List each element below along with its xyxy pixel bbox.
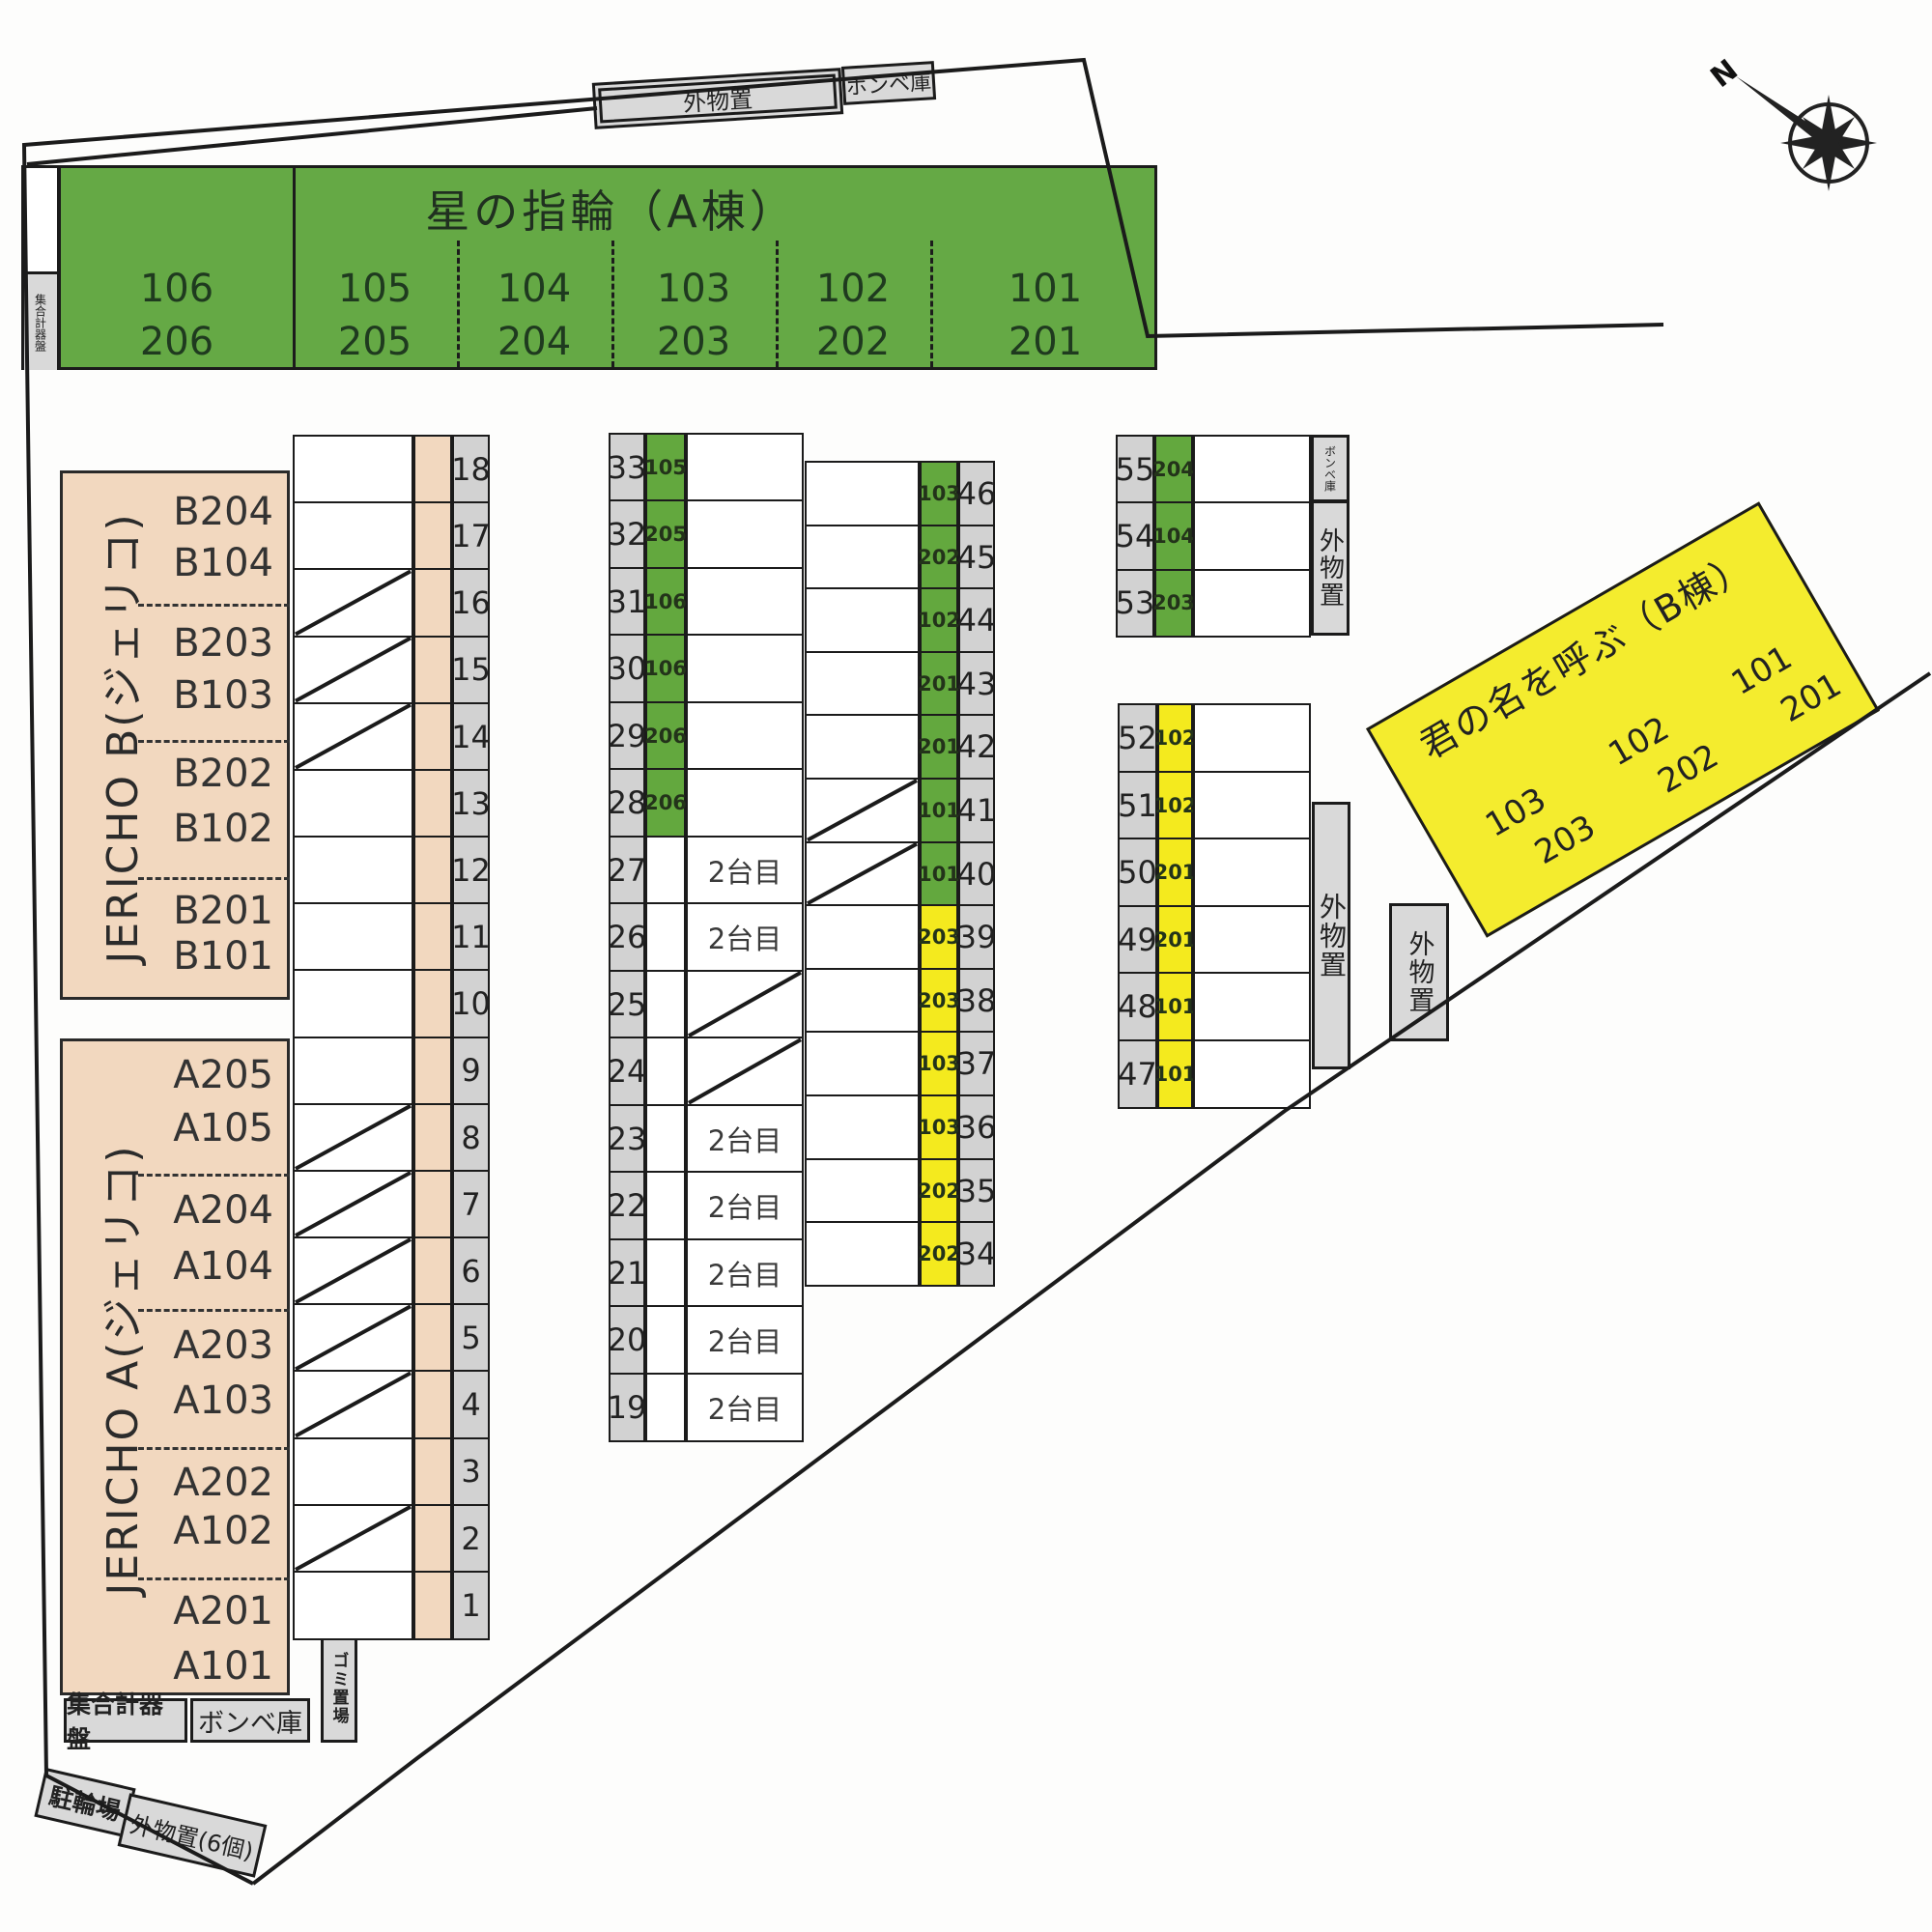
parking-tan-5 — [413, 1303, 452, 1373]
green-unit-second-206: 206 — [140, 320, 213, 364]
parking-stall-53 — [1193, 569, 1311, 639]
green-unit-first-104: 104 — [497, 267, 571, 311]
parking-space-number-23: 23 — [611, 1106, 643, 1172]
parking-space-number-16: 16 — [454, 570, 488, 636]
parking-cell-51: 102 — [1157, 771, 1193, 840]
second-car-label-21: 2台目 — [688, 1240, 802, 1306]
parking-space-number-5: 5 — [454, 1305, 488, 1371]
compass-star-diagonal — [1803, 117, 1855, 169]
ne-cylinder-storage-label: ボンベ庫 — [1322, 445, 1339, 492]
parking-num-28: 28 — [609, 768, 645, 838]
unit-label-A104: A104 — [173, 1244, 273, 1289]
parking-cell-25 — [645, 970, 686, 1039]
parking-num-25: 25 — [609, 970, 645, 1039]
parking-stall-24 — [686, 1037, 804, 1106]
parking-space-number-55: 55 — [1118, 437, 1152, 502]
top-cylinder-storage: ボンベ庫 — [841, 61, 936, 105]
parking-num-32: 32 — [609, 499, 645, 569]
assigned-unit-43: 201 — [922, 653, 956, 715]
parking-space-number-9: 9 — [454, 1038, 488, 1104]
green-unit-second-204: 204 — [497, 320, 571, 364]
parking-num-1: 1 — [452, 1571, 490, 1640]
unit-label-B101: B101 — [173, 934, 273, 979]
unit-separator-0 — [138, 1174, 290, 1177]
parking-tan-3 — [413, 1437, 452, 1507]
parking-num-41: 41 — [958, 778, 995, 843]
building-jericho-a: JERICHO A(ジェリコ) A205A105A204A104A203A103… — [60, 1038, 290, 1695]
parking-space-number-4: 4 — [454, 1372, 488, 1437]
parking-space-number-49: 49 — [1120, 907, 1155, 973]
garbage-area: ゴミ置場 — [321, 1634, 357, 1743]
bottom-cylinder-storage-label: ボンベ庫 — [198, 1702, 302, 1740]
building-hoshi-a-title: 星の指輪（A棟） — [425, 177, 797, 241]
parking-stall-18 — [293, 435, 413, 504]
parking-space-number-26: 26 — [611, 904, 643, 970]
building-jericho-a-name: JERICHO A(ジェリコ) — [88, 1144, 150, 1595]
parking-num-6: 6 — [452, 1236, 490, 1306]
parking-stall-2 — [293, 1504, 413, 1574]
parking-stall-34 — [805, 1221, 920, 1287]
parking-num-27: 27 — [609, 836, 645, 905]
parking-tan-14 — [413, 702, 452, 772]
parking-tan-8 — [413, 1103, 452, 1173]
parking-space-number-22: 22 — [611, 1173, 643, 1238]
compass-north-label: N — [1704, 53, 1744, 95]
parking-space-number-12: 12 — [454, 838, 488, 903]
parking-cell-28: 206 — [645, 768, 686, 838]
parking-stall-3 — [293, 1437, 413, 1507]
parking-cell-43: 201 — [920, 651, 958, 717]
parking-num-19: 19 — [609, 1373, 645, 1442]
building-kimi-b: 君の名を呼ぶ（B棟） 103203102202101201 — [1366, 501, 1880, 938]
parking-stall-46 — [805, 461, 920, 526]
east-outdoor-storage-detached-label: 外物置 — [1401, 930, 1438, 1014]
parking-tan-4 — [413, 1370, 452, 1439]
parking-num-18: 18 — [452, 435, 490, 504]
parking-cell-21 — [645, 1238, 686, 1308]
assigned-unit-29: 206 — [647, 703, 684, 769]
parking-space-number-21: 21 — [611, 1240, 643, 1306]
parking-space-number-19: 19 — [611, 1375, 643, 1440]
parking-stall-35 — [805, 1158, 920, 1224]
parking-cell-34: 202 — [920, 1221, 958, 1287]
parking-num-34: 34 — [958, 1221, 995, 1287]
parking-stall-39 — [805, 904, 920, 970]
parking-stall-13 — [293, 769, 413, 838]
parking-space-number-1: 1 — [454, 1573, 488, 1638]
parking-stall-45 — [805, 525, 920, 590]
parking-cell-41: 101 — [920, 778, 958, 843]
assigned-unit-41: 101 — [922, 780, 956, 841]
green-divider-dashed-0 — [457, 241, 460, 367]
parking-cell-52: 102 — [1157, 703, 1193, 773]
unit-label-A204: A204 — [173, 1188, 273, 1233]
parking-space-number-38: 38 — [960, 970, 993, 1032]
parking-tan-16 — [413, 568, 452, 638]
assigned-unit-54: 104 — [1156, 503, 1191, 569]
parking-cell-55: 204 — [1154, 435, 1193, 504]
parking-stall-54 — [1193, 501, 1311, 571]
parking-num-50: 50 — [1118, 838, 1157, 907]
parking-space-number-2: 2 — [454, 1506, 488, 1572]
parking-cell-31: 106 — [645, 567, 686, 637]
parking-num-35: 35 — [958, 1158, 995, 1224]
parking-num-52: 52 — [1118, 703, 1157, 773]
parking-stall-36 — [805, 1094, 920, 1160]
second-car-label-26: 2台目 — [688, 904, 802, 970]
parking-cell-33: 105 — [645, 433, 686, 502]
parking-stall-29 — [686, 701, 804, 771]
bicycle-parking: 駐輪場 — [34, 1768, 135, 1837]
parking-num-17: 17 — [452, 501, 490, 571]
parking-cell-49: 201 — [1157, 905, 1193, 975]
ne-cylinder-storage: ボンベ庫 — [1311, 435, 1350, 502]
unit-label-A103: A103 — [173, 1378, 273, 1423]
site-plan-canvas: N 外物置 ボンベ庫 星の指輪（A棟） 10620610520510420410… — [0, 0, 1932, 1932]
parking-num-33: 33 — [609, 433, 645, 502]
parking-tan-2 — [413, 1504, 452, 1574]
parking-cell-19 — [645, 1373, 686, 1442]
parking-num-23: 23 — [609, 1104, 645, 1174]
parking-stall-20: 2台目 — [686, 1305, 804, 1375]
parking-num-10: 10 — [452, 969, 490, 1038]
assigned-unit-47: 101 — [1159, 1041, 1191, 1107]
parking-space-number-29: 29 — [611, 703, 643, 769]
second-car-label-27: 2台目 — [688, 838, 802, 903]
parking-num-40: 40 — [958, 841, 995, 907]
parking-space-number-28: 28 — [611, 770, 643, 836]
parking-stall-28 — [686, 768, 804, 838]
parking-cell-38: 203 — [920, 968, 958, 1034]
parking-cell-27 — [645, 836, 686, 905]
parking-cell-29: 206 — [645, 701, 686, 771]
building-jericho-b-name: JERICHO B(ジェリコ) — [88, 512, 150, 963]
compass-star-main — [1780, 95, 1877, 191]
parking-space-number-52: 52 — [1120, 705, 1155, 771]
parking-stall-47 — [1193, 1039, 1311, 1109]
building-kimi-b-title: 君の名を呼ぶ（B棟） — [1377, 517, 1791, 787]
assigned-unit-55: 204 — [1156, 437, 1191, 502]
parking-stall-14 — [293, 702, 413, 772]
parking-cell-32: 205 — [645, 499, 686, 569]
assigned-unit-32: 205 — [647, 501, 684, 567]
parking-cell-24 — [645, 1037, 686, 1106]
parking-num-22: 22 — [609, 1171, 645, 1240]
parking-stall-17 — [293, 501, 413, 571]
parking-cell-48: 101 — [1157, 972, 1193, 1041]
green-unit-first-106: 106 — [140, 267, 213, 311]
parking-num-8: 8 — [452, 1103, 490, 1173]
assigned-unit-49: 201 — [1159, 907, 1191, 973]
assigned-unit-46: 103 — [922, 463, 956, 525]
assigned-unit-28: 206 — [647, 770, 684, 836]
unit-label-B104: B104 — [173, 541, 273, 585]
parking-num-2: 2 — [452, 1504, 490, 1574]
parking-stall-16 — [293, 568, 413, 638]
parking-stall-43 — [805, 651, 920, 717]
parking-stall-4 — [293, 1370, 413, 1439]
assigned-unit-31: 106 — [647, 569, 684, 635]
unit-label-B202: B202 — [173, 752, 273, 796]
unit-label-A102: A102 — [173, 1509, 273, 1553]
parking-num-16: 16 — [452, 568, 490, 638]
parking-space-number-43: 43 — [960, 653, 993, 715]
parking-num-13: 13 — [452, 769, 490, 838]
parking-stall-41 — [805, 778, 920, 843]
parking-num-30: 30 — [609, 634, 645, 703]
parking-stall-48 — [1193, 972, 1311, 1041]
parking-stall-40 — [805, 841, 920, 907]
second-car-label-23: 2台目 — [688, 1106, 802, 1172]
parking-space-number-8: 8 — [454, 1105, 488, 1171]
parking-stall-6 — [293, 1236, 413, 1306]
parking-tan-13 — [413, 769, 452, 838]
parking-num-47: 47 — [1118, 1039, 1157, 1109]
parking-cell-45: 202 — [920, 525, 958, 590]
green-unit-first-103: 103 — [657, 267, 730, 311]
east-outdoor-storage-detached: 外物置 — [1389, 903, 1449, 1041]
parking-num-3: 3 — [452, 1437, 490, 1507]
garbage-area-label: ゴミ置場 — [327, 1652, 352, 1725]
parking-space-number-27: 27 — [611, 838, 643, 903]
parking-space-number-24: 24 — [611, 1038, 643, 1104]
green-meter-strip: 集合計器盤 — [21, 165, 60, 370]
green-divider-dashed-3 — [930, 241, 933, 367]
parking-space-number-18: 18 — [454, 437, 488, 502]
parking-space-number-3: 3 — [454, 1439, 488, 1505]
assigned-unit-37: 103 — [922, 1033, 956, 1094]
parking-space-number-25: 25 — [611, 972, 643, 1037]
unit-separator-3 — [138, 1577, 290, 1580]
parking-cell-40: 101 — [920, 841, 958, 907]
parking-stall-12 — [293, 836, 413, 905]
parking-tan-17 — [413, 501, 452, 571]
bottom-meter-panel: 集合計器盤 — [64, 1698, 187, 1743]
parking-stall-32 — [686, 499, 804, 569]
green-divider-solid — [293, 168, 296, 367]
parking-stall-31 — [686, 567, 804, 637]
parking-space-number-7: 7 — [454, 1172, 488, 1237]
unit-separator-2 — [138, 877, 290, 880]
green-divider-dashed-1 — [611, 241, 614, 367]
parking-num-7: 7 — [452, 1170, 490, 1239]
assigned-unit-38: 203 — [922, 970, 956, 1032]
parking-num-31: 31 — [609, 567, 645, 637]
top-outdoor-storage-label: 外物置 — [682, 79, 753, 117]
outdoor-storage-6-label: 外物置(6個) — [128, 1804, 258, 1865]
parking-num-39: 39 — [958, 904, 995, 970]
parking-space-number-48: 48 — [1120, 974, 1155, 1039]
parking-space-number-45: 45 — [960, 526, 993, 588]
parking-stall-9 — [293, 1037, 413, 1106]
parking-cell-37: 103 — [920, 1031, 958, 1096]
assigned-unit-35: 202 — [922, 1160, 956, 1222]
parking-cell-54: 104 — [1154, 501, 1193, 571]
unit-label-B204: B204 — [173, 490, 273, 534]
parking-stall-52 — [1193, 703, 1311, 773]
parking-space-number-40: 40 — [960, 843, 993, 905]
parking-stall-7 — [293, 1170, 413, 1239]
assigned-unit-42: 201 — [922, 716, 956, 778]
parking-num-54: 54 — [1116, 501, 1154, 571]
parking-space-number-20: 20 — [611, 1307, 643, 1373]
parking-space-number-42: 42 — [960, 716, 993, 778]
parking-num-53: 53 — [1116, 569, 1154, 639]
bicycle-parking-label: 駐輪場 — [45, 1777, 124, 1828]
unit-label-A202: A202 — [173, 1461, 273, 1505]
parking-num-11: 11 — [452, 902, 490, 972]
parking-num-21: 21 — [609, 1238, 645, 1308]
parking-num-29: 29 — [609, 701, 645, 771]
parking-stall-26: 2台目 — [686, 902, 804, 972]
parking-tan-15 — [413, 636, 452, 705]
parking-cell-30: 106 — [645, 634, 686, 703]
parking-space-number-32: 32 — [611, 501, 643, 567]
second-car-label-20: 2台目 — [688, 1307, 802, 1373]
compass-rose: N — [1704, 53, 1877, 191]
parking-space-number-30: 30 — [611, 636, 643, 701]
assigned-unit-52: 102 — [1159, 705, 1191, 771]
parking-num-48: 48 — [1118, 972, 1157, 1041]
parking-stall-38 — [805, 968, 920, 1034]
parking-num-15: 15 — [452, 636, 490, 705]
top-outdoor-storage: 外物置 — [598, 74, 838, 124]
parking-tan-10 — [413, 969, 452, 1038]
assigned-unit-30: 106 — [647, 636, 684, 701]
unit-label-B103: B103 — [173, 673, 273, 718]
unit-label-B203: B203 — [173, 621, 273, 666]
parking-space-number-13: 13 — [454, 771, 488, 837]
parking-space-number-35: 35 — [960, 1160, 993, 1222]
parking-space-number-17: 17 — [454, 503, 488, 569]
parking-stall-15 — [293, 636, 413, 705]
parking-stall-8 — [293, 1103, 413, 1173]
assigned-unit-36: 103 — [922, 1096, 956, 1158]
compass-needle — [1736, 76, 1833, 148]
parking-num-55: 55 — [1116, 435, 1154, 504]
parking-tan-6 — [413, 1236, 452, 1306]
unit-label-B102: B102 — [173, 807, 273, 851]
parking-num-49: 49 — [1118, 905, 1157, 975]
parking-stall-33 — [686, 433, 804, 502]
parking-num-44: 44 — [958, 587, 995, 653]
parking-cell-44: 102 — [920, 587, 958, 653]
green-unit-first-105: 105 — [338, 267, 412, 311]
parking-cell-22 — [645, 1171, 686, 1240]
parking-num-14: 14 — [452, 702, 490, 772]
parking-stall-37 — [805, 1031, 920, 1096]
parking-space-number-15: 15 — [454, 638, 488, 703]
parking-stall-21: 2台目 — [686, 1238, 804, 1308]
second-car-label-22: 2台目 — [688, 1173, 802, 1238]
parking-tan-7 — [413, 1170, 452, 1239]
parking-cell-53: 203 — [1154, 569, 1193, 639]
green-unit-second-205: 205 — [338, 320, 412, 364]
parking-cell-36: 103 — [920, 1094, 958, 1160]
green-meter-panel: 集合計器盤 — [24, 271, 57, 370]
assigned-unit-34: 202 — [922, 1223, 956, 1285]
parking-space-number-51: 51 — [1120, 773, 1155, 838]
parking-cell-35: 202 — [920, 1158, 958, 1224]
building-jericho-b: JERICHO B(ジェリコ) B204B104B203B103B202B102… — [60, 470, 290, 1000]
parking-num-45: 45 — [958, 525, 995, 590]
building-hoshi-a: 星の指輪（A棟） 1062061052051042041032031022021… — [58, 165, 1157, 370]
parking-num-37: 37 — [958, 1031, 995, 1096]
parking-num-43: 43 — [958, 651, 995, 717]
parking-num-5: 5 — [452, 1303, 490, 1373]
parking-num-12: 12 — [452, 836, 490, 905]
green-unit-first-102: 102 — [816, 267, 890, 311]
assigned-unit-53: 203 — [1156, 571, 1191, 637]
parking-stall-42 — [805, 714, 920, 780]
assigned-unit-44: 102 — [922, 589, 956, 651]
parking-stall-25 — [686, 970, 804, 1039]
assigned-unit-45: 202 — [922, 526, 956, 588]
parking-stall-5 — [293, 1303, 413, 1373]
parking-space-number-46: 46 — [960, 463, 993, 525]
parking-num-46: 46 — [958, 461, 995, 526]
top-cylinder-storage-label: ボンベ庫 — [845, 65, 932, 100]
parking-stall-10 — [293, 969, 413, 1038]
parking-stall-44 — [805, 587, 920, 653]
assigned-unit-40: 101 — [922, 843, 956, 905]
parking-cell-39: 203 — [920, 904, 958, 970]
parking-tan-18 — [413, 435, 452, 504]
unit-label-B201: B201 — [173, 889, 273, 933]
bottom-cylinder-storage: ボンベ庫 — [190, 1698, 310, 1743]
assigned-unit-51: 102 — [1159, 773, 1191, 838]
unit-separator-1 — [138, 1309, 290, 1312]
parking-stall-27: 2台目 — [686, 836, 804, 905]
parking-tan-11 — [413, 902, 452, 972]
assigned-unit-48: 101 — [1159, 974, 1191, 1039]
outdoor-storage-6: 外物置(6個) — [118, 1793, 268, 1877]
assigned-unit-50: 201 — [1159, 839, 1191, 905]
parking-stall-22: 2台目 — [686, 1171, 804, 1240]
assigned-unit-33: 105 — [647, 435, 684, 500]
parking-num-4: 4 — [452, 1370, 490, 1439]
parking-num-36: 36 — [958, 1094, 995, 1160]
parking-num-51: 51 — [1118, 771, 1157, 840]
parking-space-number-31: 31 — [611, 569, 643, 635]
parking-tan-1 — [413, 1571, 452, 1640]
parking-stall-1 — [293, 1571, 413, 1640]
parking-space-number-50: 50 — [1120, 839, 1155, 905]
parking-space-number-33: 33 — [611, 435, 643, 500]
parking-space-number-11: 11 — [454, 904, 488, 970]
bottom-meter-panel-label: 集合計器盤 — [67, 1686, 185, 1755]
parking-tan-12 — [413, 836, 452, 905]
parking-cell-20 — [645, 1305, 686, 1375]
parking-space-number-53: 53 — [1118, 571, 1152, 637]
unit-separator-0 — [138, 604, 290, 607]
parking-space-number-34: 34 — [960, 1223, 993, 1285]
second-car-label-19: 2台目 — [688, 1375, 802, 1440]
parking-space-number-39: 39 — [960, 906, 993, 968]
parking-space-number-14: 14 — [454, 704, 488, 770]
parking-space-number-47: 47 — [1120, 1041, 1155, 1107]
parking-space-number-54: 54 — [1118, 503, 1152, 569]
unit-separator-2 — [138, 1447, 290, 1450]
building-kimi-b-units: 103203102202101201 — [1370, 505, 1758, 729]
parking-stall-30 — [686, 634, 804, 703]
green-meter-panel-label: 集合計器盤 — [33, 294, 49, 352]
parking-cell-23 — [645, 1104, 686, 1174]
unit-separator-1 — [138, 740, 290, 743]
parking-cell-47: 101 — [1157, 1039, 1193, 1109]
parking-stall-11 — [293, 902, 413, 972]
parking-num-42: 42 — [958, 714, 995, 780]
